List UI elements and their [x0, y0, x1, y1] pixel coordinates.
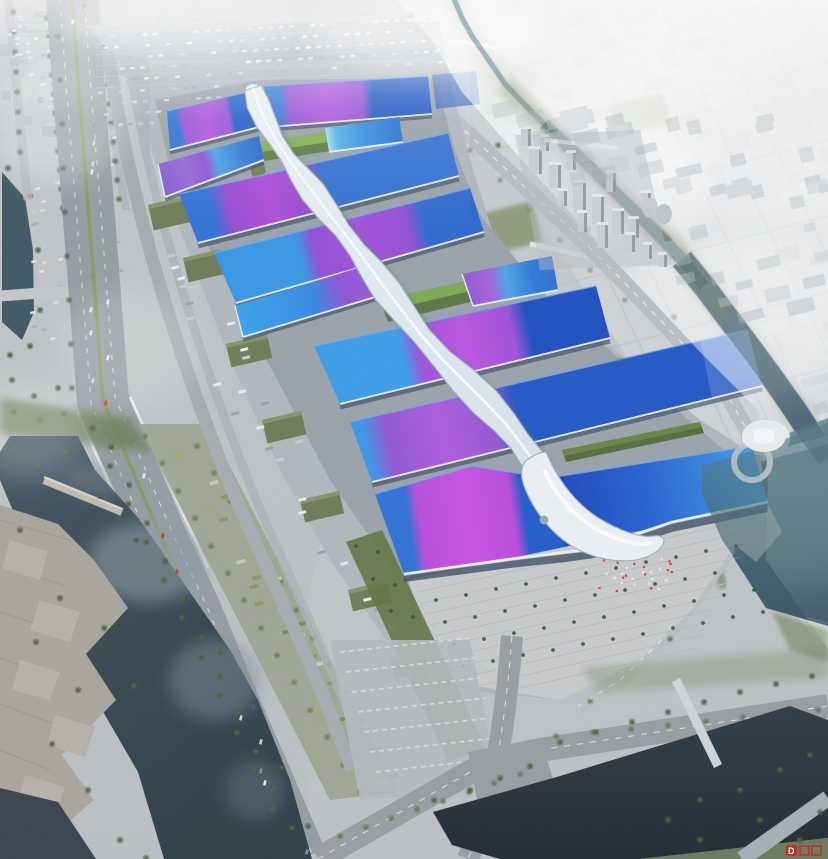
- svg-text:D: D: [788, 846, 795, 856]
